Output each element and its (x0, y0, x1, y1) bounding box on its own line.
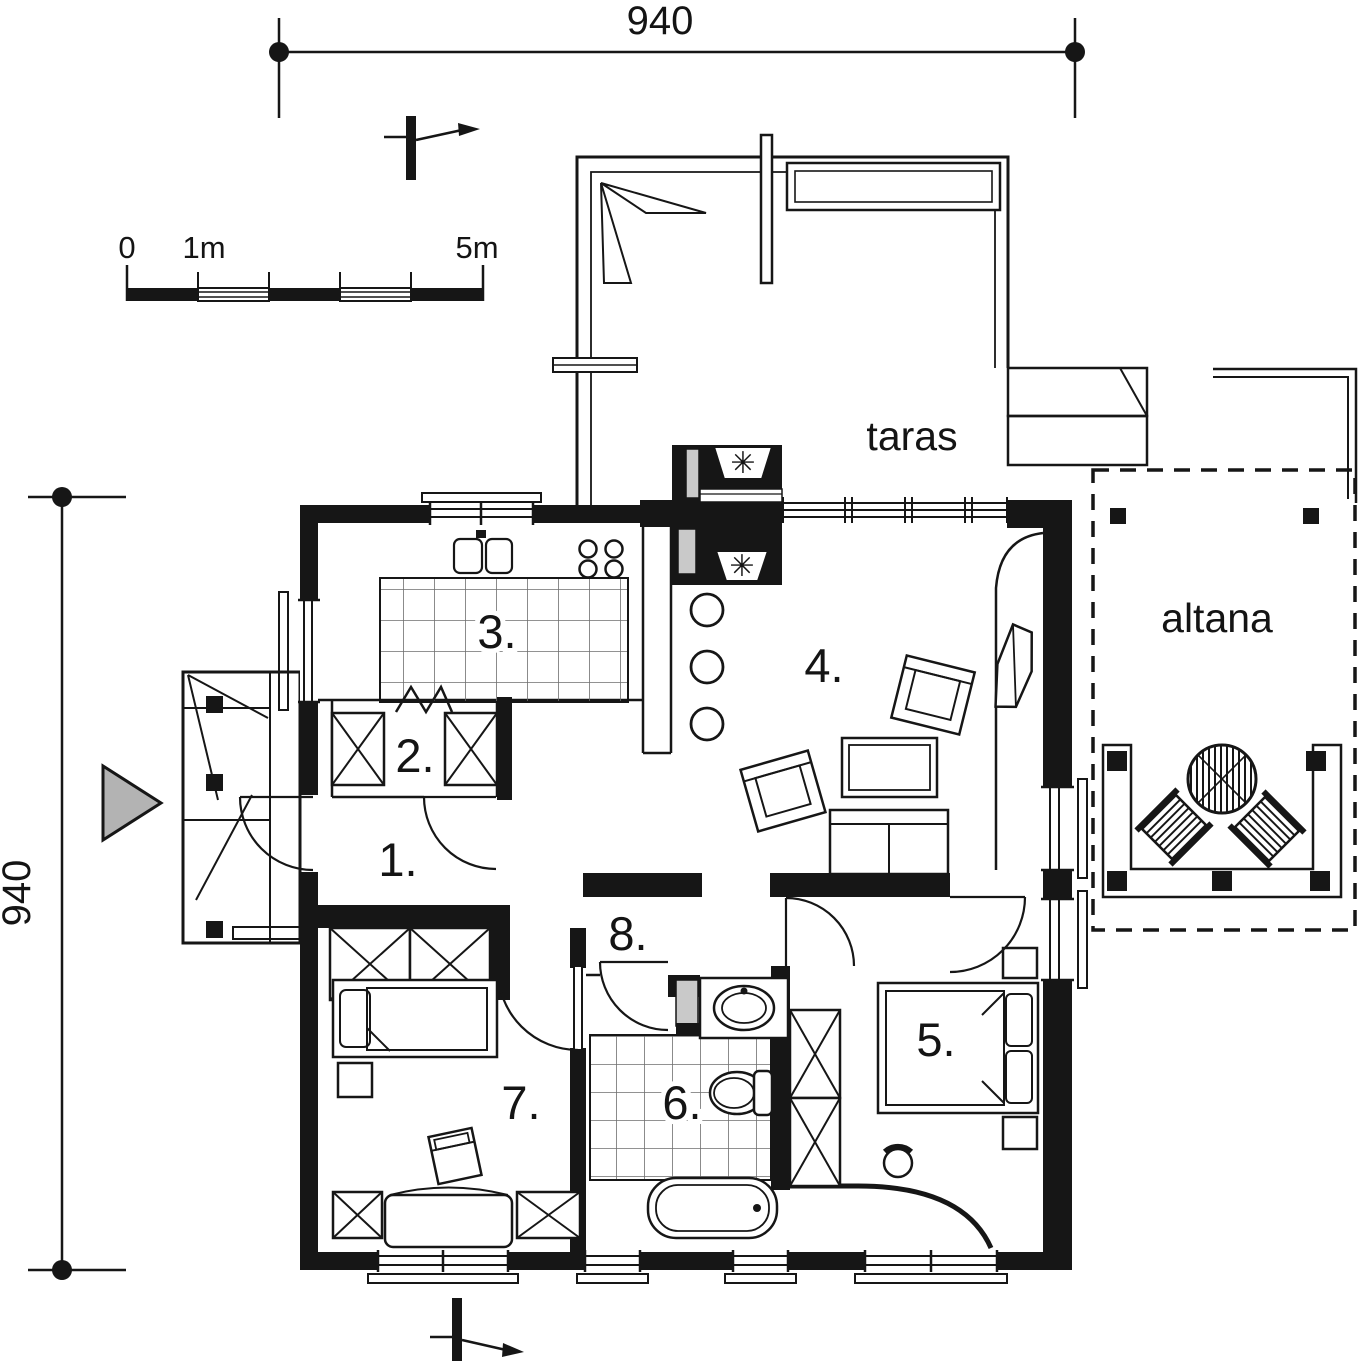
left-dimension: 940 (0, 487, 126, 1280)
terrace-label: taras (866, 413, 957, 459)
kitchen-sink (454, 530, 512, 573)
floor-plan-page: 940 940 0 1m 5m (0, 0, 1368, 1361)
flue-icon: ✳ (729, 550, 754, 583)
scale-bar: 0 1m 5m (118, 230, 498, 301)
toilet (710, 1071, 772, 1115)
floor-plan-canvas: 940 940 0 1m 5m (0, 0, 1368, 1361)
room-7-label: 7. (501, 1076, 540, 1129)
nightstand (1003, 948, 1037, 978)
washbasin (676, 978, 788, 1038)
stool (884, 1147, 912, 1177)
living-room (691, 594, 1040, 874)
desk-chair (428, 1128, 481, 1184)
wardrobe (517, 1192, 580, 1238)
room-1-label: 1. (378, 833, 417, 886)
wardrobe (445, 713, 497, 785)
section-marker-top-icon (384, 116, 480, 180)
coffee-table (842, 738, 937, 797)
top-dimension: 940 (269, 0, 1085, 118)
low-cabinet (385, 1188, 512, 1248)
scale-zero: 0 (118, 230, 135, 265)
bar-stool (691, 594, 723, 626)
double-bed (878, 983, 1038, 1113)
left-dimension-value: 940 (0, 860, 39, 927)
gazebo-label: altana (1161, 595, 1273, 641)
wardrobe (790, 1098, 840, 1186)
gazebo-table (1188, 745, 1256, 813)
room-8-label: 8. (608, 907, 647, 960)
flue-icon: ✳ (730, 447, 755, 480)
scale-one-meter: 1m (182, 230, 225, 265)
scale-five-meters: 5m (455, 230, 498, 265)
room-6-label: 6. (662, 1076, 701, 1129)
fireplace: ✳ ✳ (672, 445, 782, 585)
sofa (830, 810, 948, 874)
bar-stool (691, 708, 723, 740)
nightstand (1003, 1117, 1037, 1149)
armchair (891, 655, 974, 734)
terrace-glazing (783, 497, 1007, 523)
gazebo: altana (1093, 369, 1356, 930)
entrance-arrow-icon (103, 766, 161, 840)
bedroom-5 (878, 948, 1038, 1177)
room-3-label: 3. (477, 605, 516, 658)
room-2-label: 2. (395, 729, 434, 782)
bar-stool (691, 651, 723, 683)
wardrobe (790, 1010, 840, 1098)
bathtub (648, 1178, 777, 1238)
single-bed (333, 980, 497, 1057)
wardrobe (333, 1192, 382, 1238)
room-4-label: 4. (804, 639, 843, 692)
room-5-label: 5. (916, 1013, 955, 1066)
side-table (338, 1063, 372, 1097)
terrace-steps (1008, 368, 1147, 465)
section-marker-bottom-icon (430, 1298, 524, 1361)
top-dimension-value: 940 (627, 0, 694, 43)
armchair (741, 751, 826, 832)
kitchen-stove (580, 541, 623, 578)
wardrobe (332, 713, 384, 785)
